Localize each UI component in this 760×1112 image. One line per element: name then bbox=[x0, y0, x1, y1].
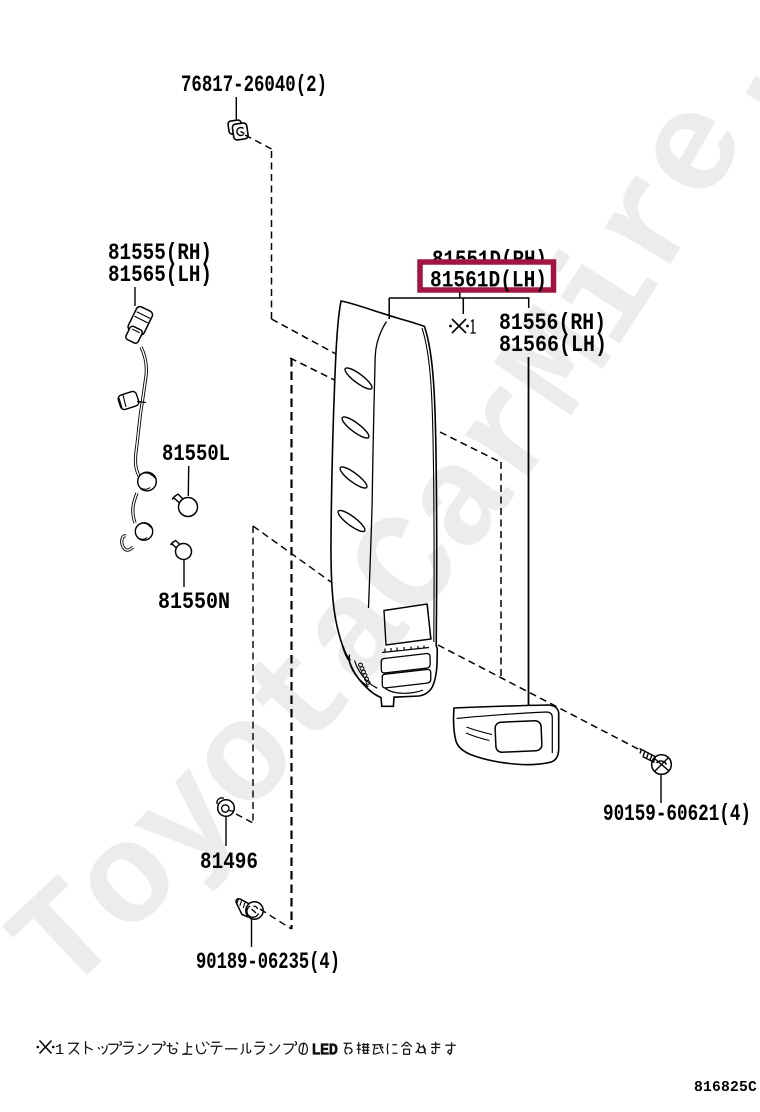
svg-text:81566(LH): 81566(LH) bbox=[499, 332, 607, 358]
svg-text:90159-60621(4): 90159-60621(4) bbox=[603, 801, 751, 827]
svg-text:81550L: 81550L bbox=[162, 441, 230, 467]
svg-text:816825C: 816825C bbox=[694, 1079, 757, 1096]
svg-text:81565(LH): 81565(LH) bbox=[108, 262, 212, 288]
svg-text:81550N: 81550N bbox=[158, 589, 230, 615]
svg-text:76817-26040(2): 76817-26040(2) bbox=[181, 72, 327, 98]
svg-text:90189-06235(4): 90189-06235(4) bbox=[196, 949, 340, 975]
svg-text:81561D(LH): 81561D(LH) bbox=[430, 268, 547, 294]
svg-text:1: 1 bbox=[55, 1042, 64, 1059]
svg-text:LED: LED bbox=[312, 1043, 338, 1059]
svg-text:81496: 81496 bbox=[200, 849, 258, 875]
